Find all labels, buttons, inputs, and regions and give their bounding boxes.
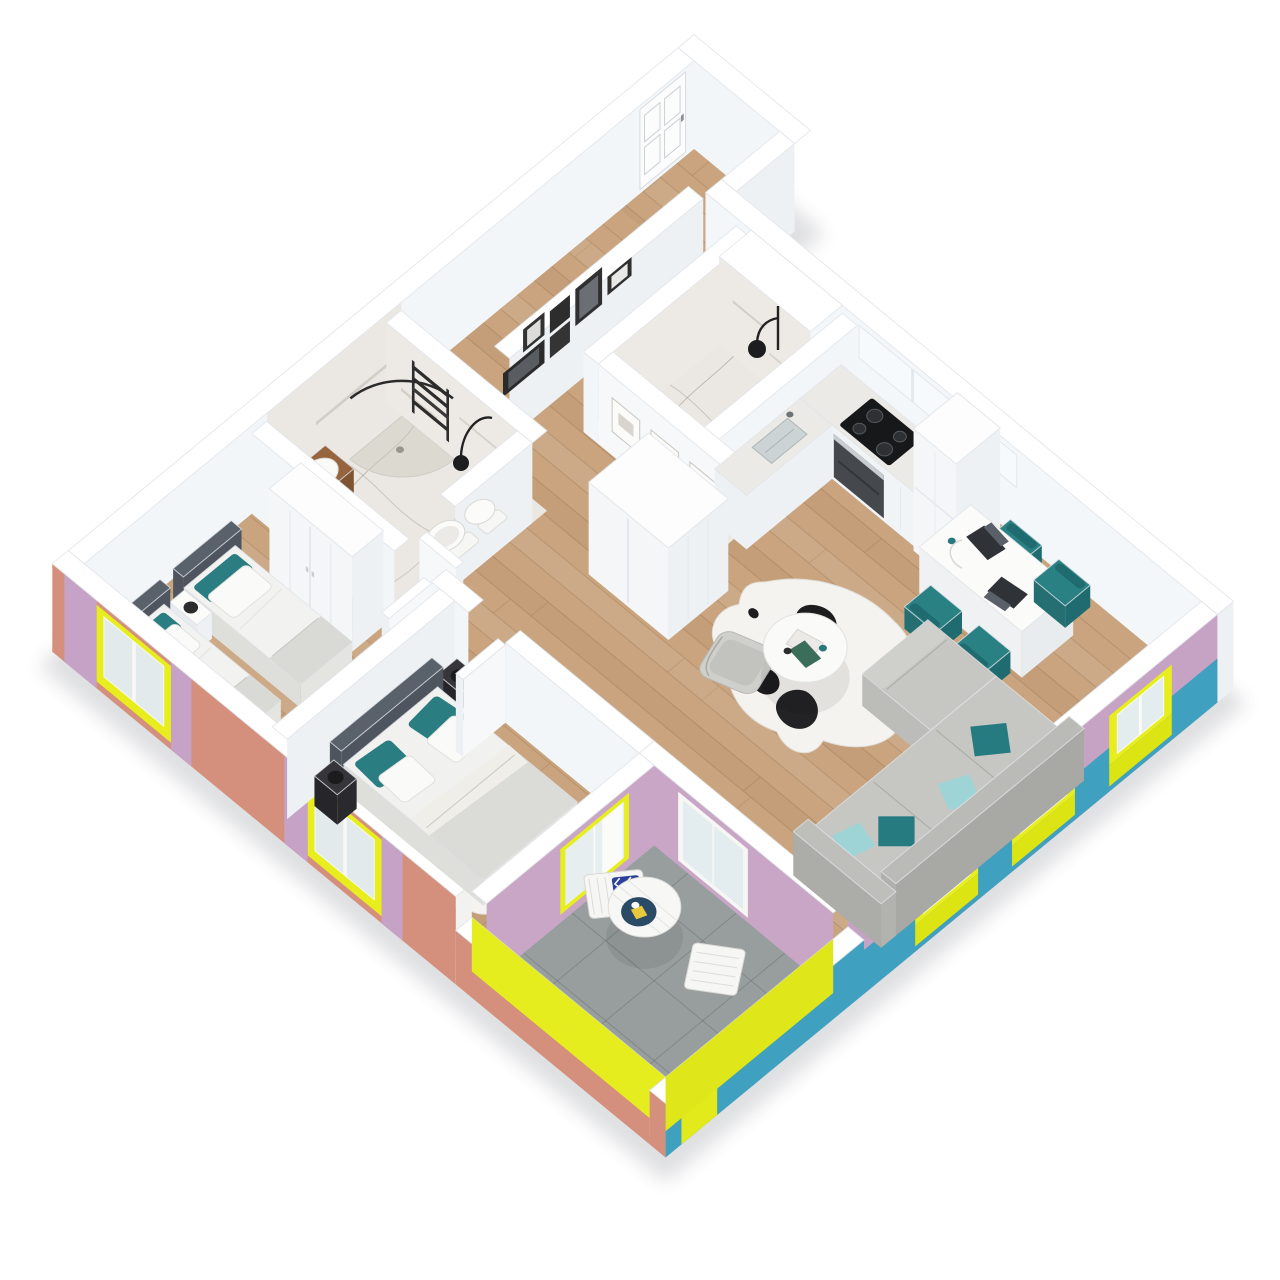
- isometric-floor-plan: [0, 0, 1280, 1280]
- screenshot-root: [0, 0, 1280, 1280]
